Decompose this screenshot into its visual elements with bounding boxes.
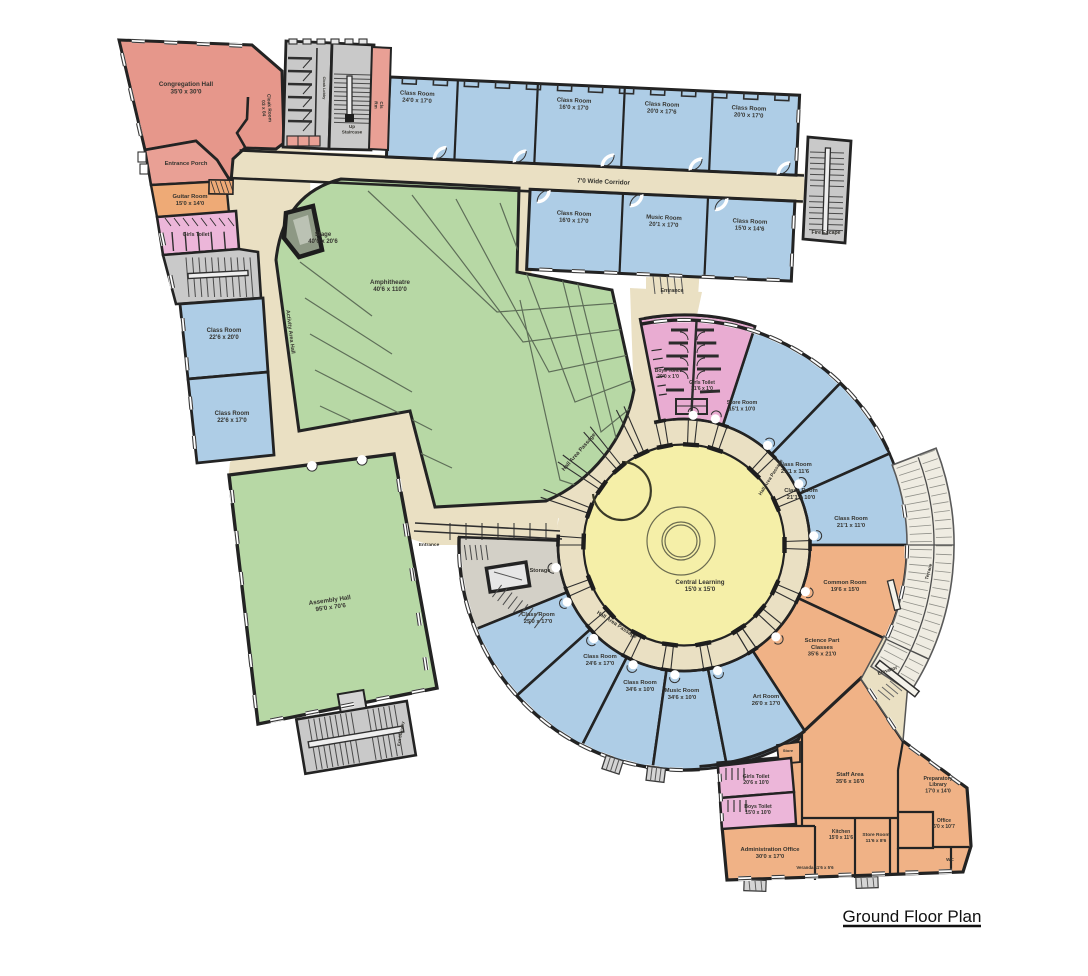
svg-text:Guitar Room15'0 x 14'0: Guitar Room15'0 x 14'0 [172,194,207,207]
svg-text:Store Room11'6 x 8'6: Store Room11'6 x 8'6 [862,832,889,844]
svg-text:Girls Toilet20'6 x 10'0: Girls Toilet20'6 x 10'0 [743,774,770,786]
svg-text:Class Room20'0 x 17'6: Class Room20'0 x 17'6 [644,101,679,116]
svg-text:Class Room22'6 x 17'0: Class Room22'6 x 17'0 [215,411,250,424]
svg-text:Class Room15'0 x 14'6: Class Room15'0 x 14'6 [732,218,767,233]
svg-text:Music Room20'1 x 17'0: Music Room20'1 x 17'0 [646,215,682,230]
svg-text:Girls Toilet: Girls Toilet [183,232,210,238]
svg-text:Class Room16'0 x 17'0: Class Room16'0 x 17'0 [556,211,591,226]
svg-text:Entrance Porch: Entrance Porch [165,161,208,167]
svg-text:Cloak Lobby: Cloak Lobby [322,77,326,101]
svg-text:ClsRm: ClsRm [373,101,384,109]
svg-text:Kitchen15'0 x 11'6: Kitchen15'0 x 11'6 [829,829,854,841]
svg-text:Staff Area35'6 x 16'0: Staff Area35'6 x 16'0 [836,772,865,785]
svg-text:WC: WC [946,857,954,862]
svg-text:Class Room21'1 x 11'0: Class Room21'1 x 11'0 [834,516,868,529]
svg-text:Art Room26'0 x 17'0: Art Room26'0 x 17'0 [752,694,781,707]
svg-text:Store: Store [783,748,794,753]
svg-text:Veranda 11'6 x 5'6: Veranda 11'6 x 5'6 [796,865,834,870]
svg-text:Storage: Storage [530,568,551,574]
svg-text:Class Room25'0 x 17'0: Class Room25'0 x 17'0 [521,612,555,625]
svg-text:Boys Toilet20'0 x 1'0: Boys Toilet20'0 x 1'0 [655,368,682,380]
svg-text:Class Room20'0 x 17'0: Class Room20'0 x 17'0 [731,105,766,120]
svg-text:Class Room22'6 x 20'0: Class Room22'6 x 20'0 [207,328,242,341]
svg-text:Ground Floor Plan: Ground Floor Plan [843,907,982,926]
svg-text:Class Room24'6 x 17'0: Class Room24'6 x 17'0 [583,654,617,667]
svg-text:Store Room15'1 x 10'0: Store Room15'1 x 10'0 [727,400,758,412]
svg-text:Girls Toilet21'6 x 1'0: Girls Toilet21'6 x 1'0 [689,380,715,392]
svg-text:Fire Escape: Fire Escape [811,230,840,236]
svg-text:Class Room21'1 x 11'6: Class Room21'1 x 11'6 [778,462,812,475]
svg-text:Entrance: Entrance [419,542,440,548]
svg-text:Class Room16'0 x 17'0: Class Room16'0 x 17'0 [556,97,591,112]
svg-text:Boys Toilet15'0 x 10'0: Boys Toilet15'0 x 10'0 [744,804,772,816]
svg-text:Amphitheatre40'6 x 110'0: Amphitheatre40'6 x 110'0 [370,279,410,293]
svg-text:Entrance: Entrance [660,288,683,294]
svg-text:Class Room21'1 x 10'0: Class Room21'1 x 10'0 [784,488,818,501]
svg-text:Music Room34'6 x 10'0: Music Room34'6 x 10'0 [665,688,699,701]
svg-text:Class Room24'0 x 17'0: Class Room24'0 x 17'0 [399,90,434,105]
svg-text:Class Room34'6 x 10'0: Class Room34'6 x 10'0 [623,680,657,693]
